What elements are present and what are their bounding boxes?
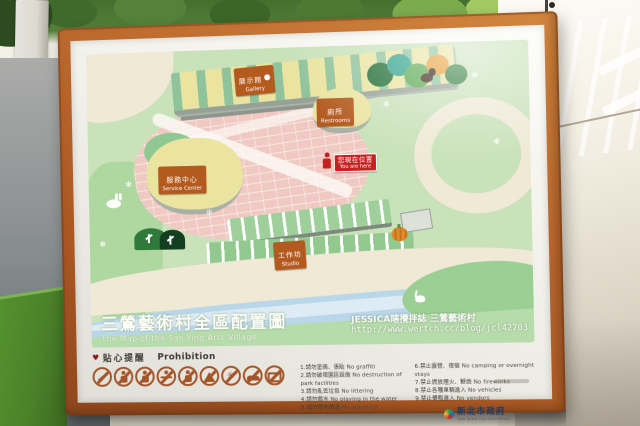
prohibition-header: ♥ 貼心提醒 Prohibition [92, 346, 535, 364]
prohibition-item: 9.禁止攤販進入 No vendors [415, 395, 544, 404]
gallery-label: 展示館 Gallery [234, 65, 276, 97]
prohibition-list-2: 6.禁止露營、夜宿 No camping or overnight stays … [415, 363, 545, 423]
visitor-icon [264, 74, 270, 81]
bush [159, 229, 185, 249]
prohibition-item: 2.請勿破壞園區設施 No destruction of park facili… [300, 372, 409, 389]
prohibition-icons [92, 365, 301, 424]
squirrel-icon [421, 73, 433, 82]
city-government-logo: 新北市政府 New Taipei City Government [444, 405, 545, 422]
sign-board: 展示館 Gallery 廁所 Restrooms 服務中心 Service Ce… [70, 25, 552, 403]
faint-small-print [494, 379, 529, 383]
prohibition-title-zh: 貼心提醒 [103, 351, 146, 364]
grass-patch [0, 286, 67, 426]
restrooms-label: 廁所 Restrooms [316, 98, 354, 127]
prohibition-title-en: Prohibition [157, 352, 215, 363]
flower-icon [99, 241, 106, 249]
studio-label: 工作坊 Studio [273, 240, 307, 270]
no-fireworks-icon [221, 366, 241, 386]
map-signboard: 展示館 Gallery 廁所 Restrooms 服務中心 Service Ce… [58, 11, 566, 416]
no-vendors-icon [264, 365, 284, 385]
heart-icon: ♥ [92, 353, 99, 362]
white-tree-icon [148, 234, 150, 243]
logo-text-en: New Taipei City Government [457, 417, 511, 422]
white-tree-icon [169, 236, 171, 245]
prohibition-item: 6.禁止露營、夜宿 No camping or overnight stays [415, 363, 544, 380]
no-playing-in-water-icon [156, 366, 176, 386]
flower-icon [125, 181, 132, 189]
sign-frame: 展示館 Gallery 廁所 Restrooms 服務中心 Service Ce… [58, 11, 566, 416]
no-urinating-icon [178, 366, 198, 386]
tree [445, 64, 468, 85]
logo-text-zh: 新北市政府 [457, 406, 506, 416]
service-center-label: 服務中心 Service Center [158, 166, 206, 195]
no-destruction-of-facilities-icon [114, 367, 134, 387]
flower-icon [471, 72, 478, 80]
you-are-here-person-icon [322, 152, 332, 169]
prohibition-list-1: 1.請勿塗鴉、張貼 No graffiti 2.請勿破壞園區設施 No dest… [300, 364, 410, 423]
no-littering-icon [135, 367, 155, 387]
path [86, 40, 175, 124]
prohibition-item: 5.請勿隨地便溺 No urinating [301, 404, 409, 413]
photo-of-signboard: 展示館 Gallery 廁所 Restrooms 服務中心 Service Ce… [0, 0, 640, 426]
map-title: 三鶯藝術村全區配置圖 The Map of the San-Ying Arts … [101, 307, 288, 343]
you-are-here-label: 您現在位置 You are here [334, 153, 378, 173]
flower-icon [493, 138, 500, 146]
flower-icon [206, 209, 213, 217]
photo-watermark: JESSICA瞎攪拌誌 三鶯藝術村 http://www.wertch.cc/b… [351, 310, 528, 336]
flower-icon [383, 101, 390, 109]
no-camping-icon [199, 366, 219, 386]
prohibition-section: ♥ 貼心提醒 Prohibition [92, 346, 535, 394]
no-graffiti-icon [92, 367, 112, 387]
park-map: 展示館 Gallery 廁所 Restrooms 服務中心 Service Ce… [86, 40, 535, 348]
no-vehicles-icon [243, 365, 263, 385]
pole-lamp [549, 2, 555, 8]
new-taipei-emblem-icon [444, 409, 454, 419]
map-title-zh: 三鶯藝術村全區配置圖 [101, 307, 288, 334]
swan-icon [415, 295, 425, 302]
